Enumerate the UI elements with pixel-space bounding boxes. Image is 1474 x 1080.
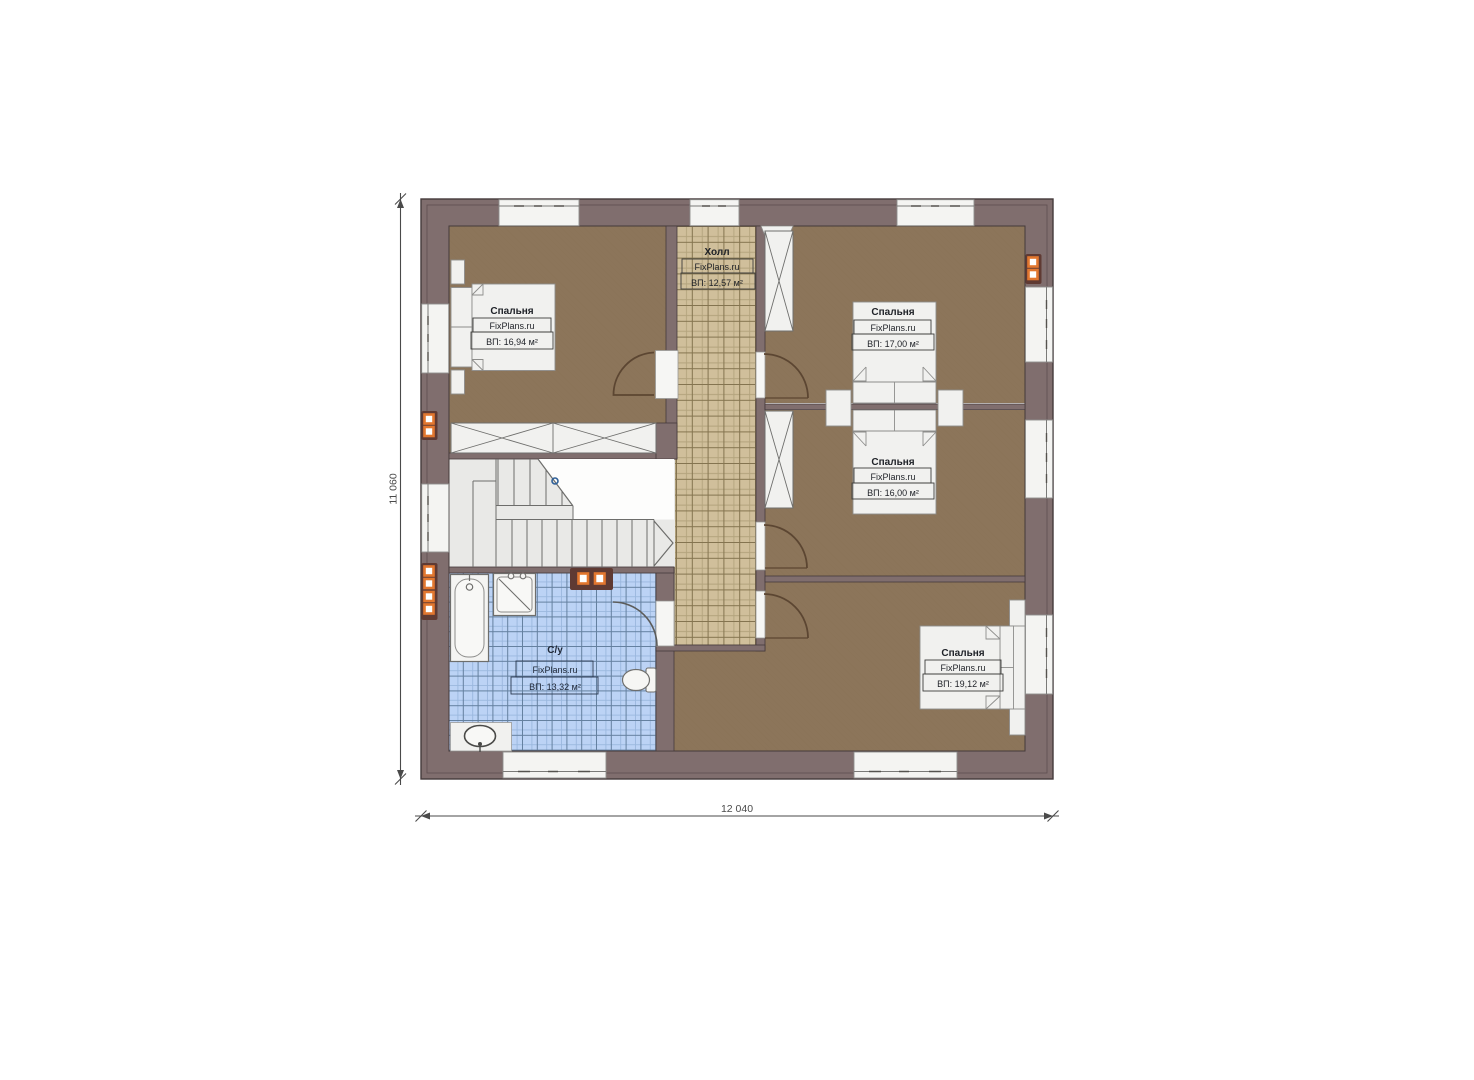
svg-text:Холл: Холл (704, 247, 729, 258)
svg-text:Спальня: Спальня (490, 306, 533, 317)
svg-text:12 040: 12 040 (721, 803, 753, 815)
svg-text:FixPlans.ru: FixPlans.ru (940, 663, 985, 673)
svg-text:FixPlans.ru: FixPlans.ru (870, 323, 915, 333)
svg-text:FixPlans.ru: FixPlans.ru (694, 262, 739, 272)
svg-text:ВП: 17,00 м²: ВП: 17,00 м² (867, 339, 919, 349)
svg-text:Спальня: Спальня (871, 307, 914, 318)
svg-text:Спальня: Спальня (871, 457, 914, 468)
svg-text:ВП: 13,32 м²: ВП: 13,32 м² (529, 682, 581, 692)
svg-text:ВП: 16,00 м²: ВП: 16,00 м² (867, 488, 919, 498)
svg-text:11 060: 11 060 (388, 473, 400, 504)
svg-text:ВП: 16,94 м²: ВП: 16,94 м² (486, 337, 538, 347)
svg-text:FixPlans.ru: FixPlans.ru (489, 321, 534, 331)
svg-text:Спальня: Спальня (941, 648, 984, 659)
svg-text:ВП: 19,12 м²: ВП: 19,12 м² (937, 679, 989, 689)
svg-text:С/у: С/у (547, 645, 563, 656)
svg-text:FixPlans.ru: FixPlans.ru (870, 472, 915, 482)
svg-text:ВП: 12,57 м²: ВП: 12,57 м² (691, 278, 743, 288)
svg-text:FixPlans.ru: FixPlans.ru (532, 665, 577, 675)
